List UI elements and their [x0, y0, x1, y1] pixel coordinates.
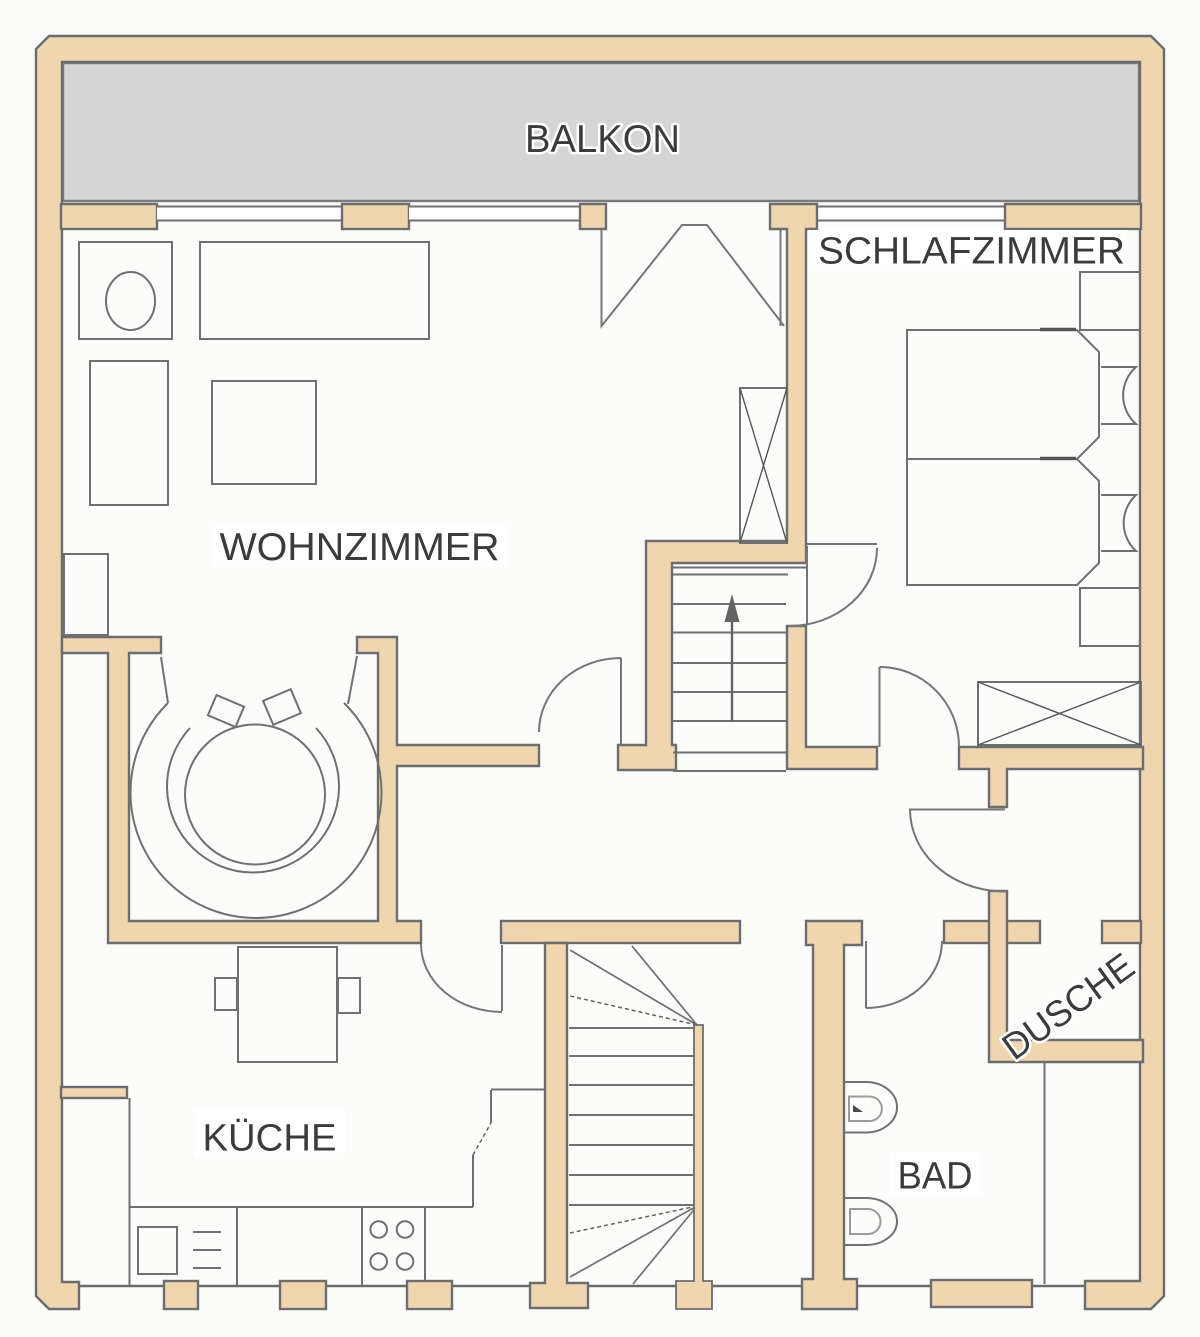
svg-text:SCHLAFZIMMER: SCHLAFZIMMER [818, 231, 1125, 273]
svg-text:WOHNZIMMER: WOHNZIMMER [220, 526, 500, 569]
svg-text:BAD: BAD [898, 1156, 973, 1198]
svg-text:KÜCHE: KÜCHE [203, 1118, 337, 1160]
svg-text:BALKON: BALKON [525, 118, 680, 161]
